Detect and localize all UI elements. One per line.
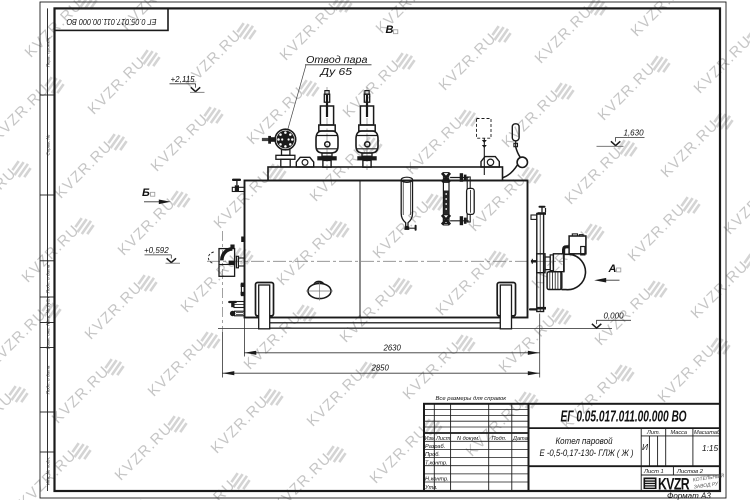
svg-text:Утв.: Утв. bbox=[424, 485, 438, 491]
svg-text:Справ. №: Справ. № bbox=[46, 135, 51, 156]
svg-text:Листов 2: Листов 2 bbox=[676, 469, 704, 475]
svg-text:И: И bbox=[642, 442, 649, 452]
svg-text:2850: 2850 bbox=[371, 364, 390, 373]
svg-text:Отвод пара: Отвод пара bbox=[306, 55, 368, 66]
svg-text:В: В bbox=[386, 24, 394, 36]
svg-text:2630: 2630 bbox=[383, 343, 402, 352]
svg-text:Проб.: Проб. bbox=[425, 452, 440, 458]
svg-text:Б: Б bbox=[142, 187, 150, 199]
svg-text:Инв. № дубл.: Инв. № дубл. bbox=[46, 296, 51, 324]
svg-text:ЕГ 0.05.017.011.00.000 ВО: ЕГ 0.05.017.011.00.000 ВО bbox=[66, 17, 156, 27]
svg-text:Т.контр.: Т.контр. bbox=[425, 460, 448, 466]
svg-text:Лист: Лист bbox=[435, 436, 451, 442]
svg-text:Подп.: Подп. bbox=[492, 436, 507, 442]
svg-text:Лит.: Лит. bbox=[646, 430, 660, 436]
svg-text:Ду 65: Ду 65 bbox=[319, 67, 352, 78]
svg-text:N докум.: N докум. bbox=[457, 436, 480, 442]
svg-text:Перв. примен.: Перв. примен. bbox=[46, 37, 51, 68]
svg-text:Изм: Изм bbox=[425, 436, 436, 442]
svg-text:Все размеры для справок: Все размеры для справок bbox=[436, 396, 507, 402]
svg-text:Котел паровой: Котел паровой bbox=[556, 436, 614, 447]
svg-text:Подп. и дата: Подп. и дата bbox=[46, 365, 51, 394]
svg-text:Инв. № подл.: Инв. № подл. bbox=[46, 457, 51, 486]
svg-text:Дата: Дата bbox=[512, 436, 528, 442]
svg-text:+2,115: +2,115 bbox=[171, 75, 196, 84]
svg-text:1,630: 1,630 bbox=[624, 129, 645, 138]
svg-text:Масса: Масса bbox=[671, 430, 688, 436]
svg-text:Н.контр.: Н.контр. bbox=[425, 477, 449, 483]
svg-text:0,000: 0,000 bbox=[604, 311, 625, 320]
svg-text:Е -0,5-0,17-130- ГЛЖ ( Ж ): Е -0,5-0,17-130- ГЛЖ ( Ж ) bbox=[540, 448, 634, 458]
svg-text:Лист 1: Лист 1 bbox=[643, 469, 664, 475]
svg-text:ЕГ 0.05.017.011.00.000 ВО: ЕГ 0.05.017.011.00.000 ВО bbox=[561, 409, 687, 426]
svg-text:Разраб.: Разраб. bbox=[425, 444, 445, 450]
svg-text:Формат А3: Формат А3 bbox=[667, 491, 711, 500]
svg-text:+0,592: +0,592 bbox=[144, 246, 169, 255]
svg-text:А: А bbox=[608, 263, 617, 275]
svg-text:Взам. инв. №: Взам. инв. № bbox=[46, 321, 51, 349]
svg-text:1:15: 1:15 bbox=[702, 443, 719, 453]
svg-text:Масштаб: Масштаб bbox=[694, 430, 721, 436]
svg-text:Подп. и дата: Подп. и дата bbox=[46, 264, 51, 293]
